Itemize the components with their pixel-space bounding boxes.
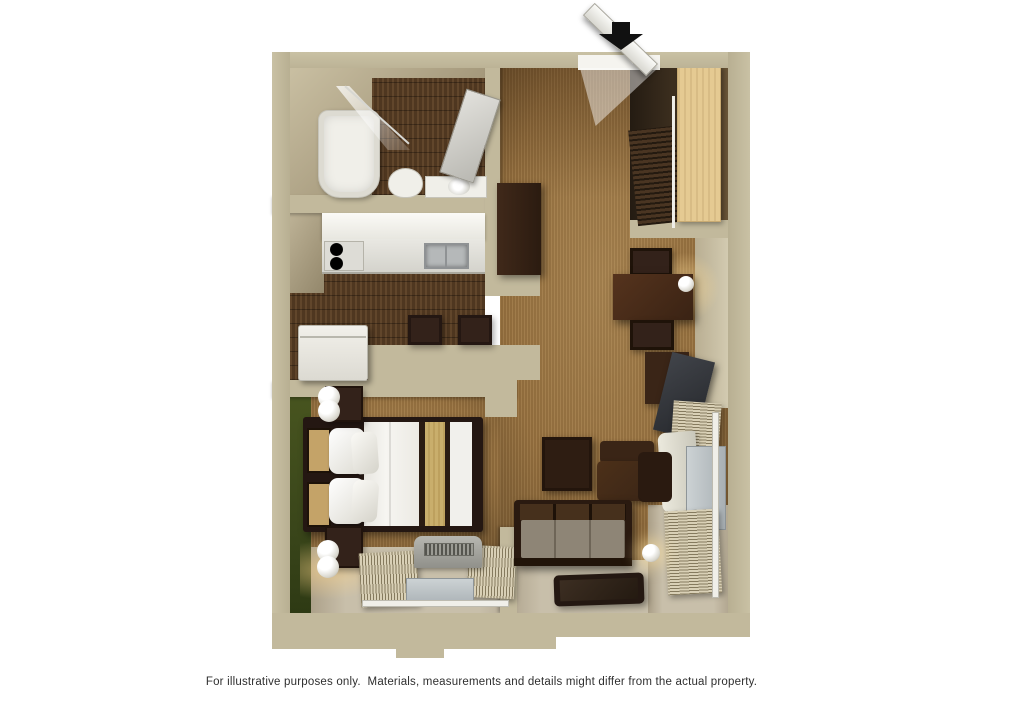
kitchen-upper-cabinets xyxy=(322,213,485,239)
bedroom-ptac-vent xyxy=(424,543,474,556)
outer-wall-left xyxy=(272,52,290,649)
headboard-panel-bottom xyxy=(307,482,331,527)
coffee-table-glass xyxy=(560,578,639,602)
wall-kitchen-bedroom xyxy=(272,380,517,397)
closet-sliding-door xyxy=(677,66,721,222)
floor-plan-page: For illustrative purposes only. Material… xyxy=(0,0,1023,716)
armchair-back xyxy=(638,452,672,502)
pillow-3 xyxy=(351,431,380,475)
outer-wall-right xyxy=(728,52,750,637)
stove-burner-2 xyxy=(330,257,343,270)
kitchen-wallface xyxy=(290,213,324,293)
window-bay-tab xyxy=(396,648,444,658)
disclaimer-caption: For illustrative purposes only. Material… xyxy=(0,676,993,688)
dining-chair-top xyxy=(630,248,672,276)
table-lamp-top-b xyxy=(318,400,340,422)
tall-cabinet xyxy=(497,183,541,275)
sofa-back-panels xyxy=(520,504,626,520)
sofa-front-rail xyxy=(514,558,632,566)
outer-wall-bottom-left xyxy=(272,613,556,649)
side-table xyxy=(542,437,592,491)
closet-hanging-clothes xyxy=(628,126,684,226)
bed-foot-white xyxy=(450,422,472,526)
stove-burner-1 xyxy=(330,243,343,256)
table-lamp-bottom-b xyxy=(317,556,339,578)
entrance-arrow-icon xyxy=(599,22,643,50)
entrance-arrow-head xyxy=(599,34,643,50)
pillow-4 xyxy=(351,479,380,523)
kitchen-sink-divider xyxy=(445,245,447,267)
toilet xyxy=(388,168,423,198)
bar-stool-2 xyxy=(458,315,492,345)
headboard-panel-top xyxy=(307,428,331,473)
desk-lamp xyxy=(678,276,694,292)
dining-chair-bottom xyxy=(630,320,674,350)
living-window-rail xyxy=(712,412,719,598)
sofa-cushions xyxy=(521,520,625,558)
bar-stool-1 xyxy=(408,315,442,345)
refrigerator xyxy=(298,325,368,381)
floor-lamp xyxy=(642,544,660,562)
closet-door-track xyxy=(672,96,675,228)
refrigerator-door-seam xyxy=(300,336,366,338)
bed-tan-stripe xyxy=(425,422,445,526)
wall-post-kitchen-living xyxy=(485,345,517,417)
outer-wall-top xyxy=(272,52,750,68)
outer-wall-bottom-right xyxy=(556,613,750,637)
bed-duvet-crease xyxy=(389,422,391,526)
bedroom-window-rail xyxy=(362,600,509,607)
